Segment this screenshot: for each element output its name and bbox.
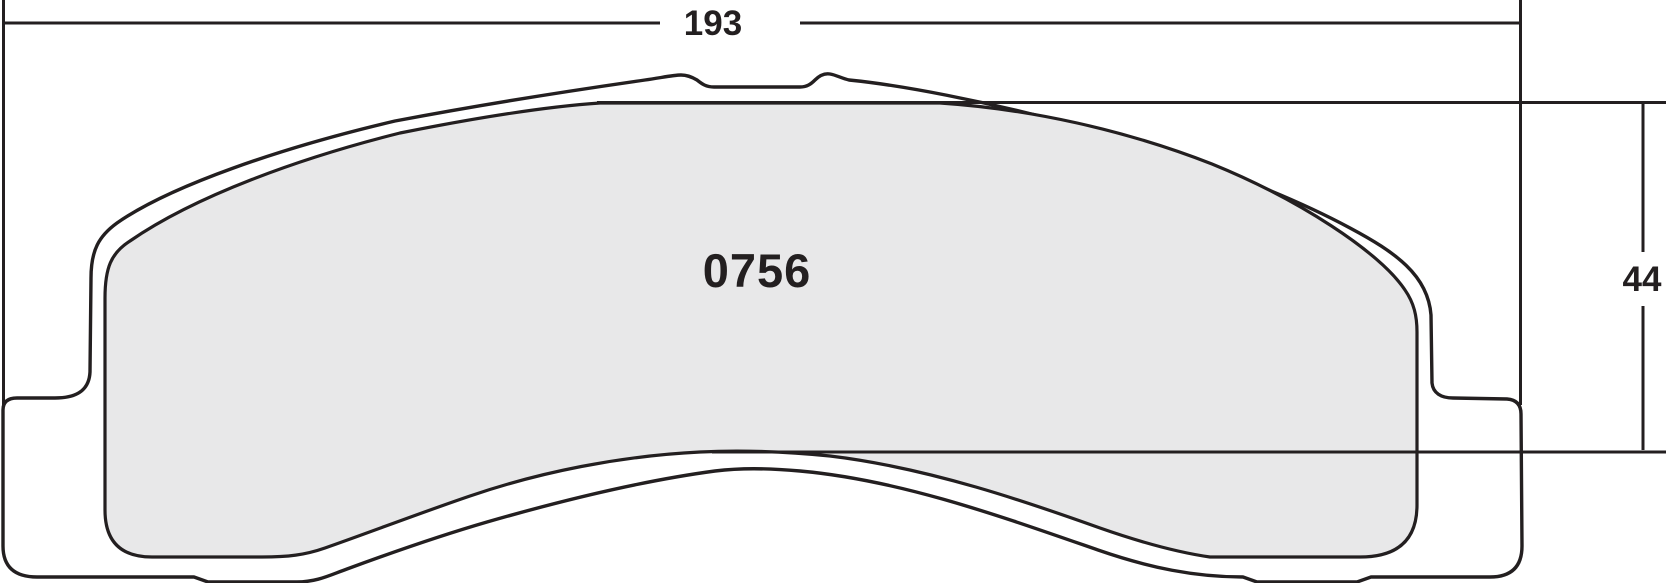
friction-material <box>105 103 1417 557</box>
brake-pad-drawing: 193 44 0756 <box>0 0 1668 583</box>
part-number-label: 0756 <box>703 244 812 297</box>
width-dimension-label: 193 <box>684 4 742 43</box>
brake-pad-diagram-canvas: 193 44 0756 <box>0 0 1668 583</box>
height-dimension-label: 44 <box>1623 260 1662 299</box>
